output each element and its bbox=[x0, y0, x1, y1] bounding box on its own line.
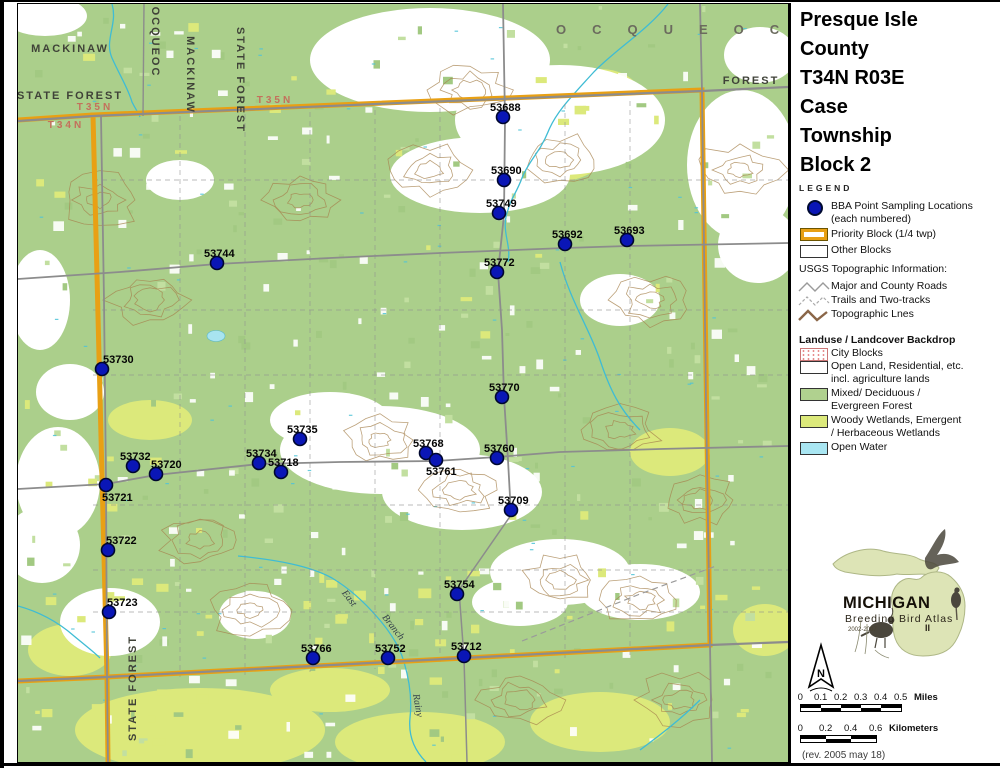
forest-swatch-icon bbox=[797, 387, 831, 401]
border-left bbox=[0, 0, 4, 768]
scalebar-km: 00.20.40.6Kilometers bbox=[800, 723, 990, 753]
border-bottom bbox=[0, 763, 1000, 766]
map-place-label: OCQUEOC bbox=[149, 7, 161, 78]
bba-point bbox=[103, 606, 116, 619]
map-place-label: T35N bbox=[77, 102, 113, 113]
bba-point-icon bbox=[797, 200, 831, 214]
landuse-item: Mixed/ Deciduous /Evergreen Forest bbox=[797, 387, 920, 413]
topo-lines-label: Topographic Lnes bbox=[831, 308, 914, 321]
legend-item-roads: Major and County Roads bbox=[797, 280, 947, 294]
scale-unit: Miles bbox=[914, 692, 938, 703]
bba-point bbox=[491, 266, 504, 279]
scale-tick: 0.4 bbox=[874, 692, 887, 703]
legend-heading: LEGEND bbox=[799, 183, 852, 193]
legend-item-other: Other Blocks bbox=[797, 244, 891, 258]
bba-point bbox=[559, 238, 572, 251]
scale-tick: 0.1 bbox=[814, 692, 827, 703]
bba-point bbox=[505, 504, 518, 517]
scale-tick: 0 bbox=[798, 723, 803, 734]
trails-label: Trails and Two-tracks bbox=[831, 294, 930, 307]
landuse-item: City Blocks bbox=[797, 347, 883, 361]
other-blocks-label: Other Blocks bbox=[831, 244, 891, 257]
bba-point-label: 53721 bbox=[102, 492, 133, 504]
bba-label: BBA Point Sampling Locations (each numbe… bbox=[831, 200, 973, 226]
bba-point bbox=[497, 111, 510, 124]
bba-point bbox=[458, 650, 471, 663]
wetland-swatch-icon bbox=[797, 414, 831, 428]
white-swatch-icon bbox=[797, 360, 831, 374]
legend-item-priority: Priority Block (1/4 twp) bbox=[797, 228, 936, 241]
bba-point bbox=[100, 479, 113, 492]
scale-tick: 0.4 bbox=[844, 723, 857, 734]
title-line: County bbox=[800, 35, 918, 64]
map-document: MACKINAWSTATE FORESTT35NT34NT35NOCQUEOCM… bbox=[0, 0, 1000, 768]
title-line: Presque Isle bbox=[800, 6, 918, 35]
title-line: T34N R03E bbox=[800, 64, 918, 93]
logo-subtitle: Breeding Bird Atlas bbox=[845, 613, 953, 625]
map-place-label: MACKINAW bbox=[31, 43, 109, 55]
scale-tick: 0.5 bbox=[894, 692, 907, 703]
bba-point-label: 53761 bbox=[426, 466, 457, 478]
revision-note: (rev. 2005 may 18) bbox=[802, 750, 885, 761]
water-swatch-icon bbox=[797, 441, 831, 455]
map-title: Presque IsleCountyT34N R03ECaseTownshipB… bbox=[800, 6, 918, 180]
landuse-item: Open Land, Residential, etc.incl. agricu… bbox=[797, 360, 964, 386]
scale-tick: 0.6 bbox=[869, 723, 882, 734]
scale-unit: Kilometers bbox=[889, 723, 938, 734]
landuse-item: Woody Wetlands, Emergent/ Herbaceous Wet… bbox=[797, 414, 961, 440]
logo-name: MICHIGAN bbox=[843, 594, 930, 613]
bba-point bbox=[96, 363, 109, 376]
topo-lines-icon bbox=[797, 308, 831, 322]
bba-point bbox=[493, 207, 506, 220]
landuse-item: Open Water bbox=[797, 441, 887, 455]
legend-item-bba: BBA Point Sampling Locations (each numbe… bbox=[797, 200, 973, 226]
logo-years: 2002-2007 bbox=[848, 627, 877, 633]
major-roads-label: Major and County Roads bbox=[831, 280, 947, 293]
bba-point bbox=[621, 234, 634, 247]
bba-point bbox=[211, 257, 224, 270]
priority-label: Priority Block (1/4 twp) bbox=[831, 228, 936, 241]
major-roads-icon bbox=[797, 280, 831, 294]
logo-numeral: II bbox=[925, 623, 930, 633]
landuse-label: Open Water bbox=[831, 441, 887, 454]
topo-map-svg: MACKINAWSTATE FORESTT35NT34NT35NOCQUEOCM… bbox=[18, 4, 788, 762]
sidebar: Presque IsleCountyT34N R03ECaseTownshipB… bbox=[793, 2, 1000, 763]
map-place-label: T34N bbox=[48, 120, 84, 131]
scale-tick: 0.2 bbox=[819, 723, 832, 734]
map-place-label: T35N bbox=[257, 95, 293, 106]
bba-point bbox=[451, 588, 464, 601]
map-place-label: STATE FOREST bbox=[127, 635, 139, 741]
legend-item-topo: Topographic Lnes bbox=[797, 308, 914, 322]
bba-point-label: 53730 bbox=[103, 354, 134, 366]
title-line: Township bbox=[800, 122, 918, 151]
legend-item-trails: Trails and Two-tracks bbox=[797, 294, 930, 308]
trails-icon bbox=[797, 294, 831, 308]
map-place-label: STATE FOREST bbox=[18, 90, 123, 102]
bba-point bbox=[307, 652, 320, 665]
scale-tick: 0 bbox=[798, 692, 803, 703]
bba-point bbox=[496, 391, 509, 404]
title-line: Block 2 bbox=[800, 151, 918, 180]
other-blocks-icon bbox=[797, 244, 831, 258]
scalebar-miles: 00.10.20.30.40.5Miles bbox=[800, 692, 990, 722]
bba-point bbox=[275, 466, 288, 479]
bba-point bbox=[253, 457, 266, 470]
bba-point bbox=[498, 174, 511, 187]
landuse-heading: Landuse / Landcover Backdrop bbox=[799, 334, 955, 346]
bba-point bbox=[294, 433, 307, 446]
bba-point bbox=[382, 652, 395, 665]
svg-text:N: N bbox=[817, 668, 825, 680]
priority-block-icon bbox=[797, 228, 831, 240]
scale-tick: 0.2 bbox=[834, 692, 847, 703]
usgs-heading: USGS Topographic Information: bbox=[799, 263, 947, 275]
bba-point bbox=[150, 468, 163, 481]
map-place-label: FOREST bbox=[723, 75, 780, 87]
landuse-label: Woody Wetlands, Emergent/ Herbaceous Wet… bbox=[831, 414, 961, 440]
landuse-label: City Blocks bbox=[831, 347, 883, 360]
map-place-label: STATE FOREST bbox=[234, 27, 246, 133]
north-arrow: N bbox=[805, 642, 837, 699]
bba-point bbox=[127, 460, 140, 473]
bba-point bbox=[430, 454, 443, 467]
bba-point bbox=[102, 544, 115, 557]
map-place-label: OCQUEOC bbox=[556, 22, 788, 37]
bba-point bbox=[491, 452, 504, 465]
map-canvas: MACKINAWSTATE FORESTT35NT34NT35NOCQUEOCM… bbox=[17, 3, 791, 763]
title-line: Case bbox=[800, 93, 918, 122]
landuse-label: Mixed/ Deciduous /Evergreen Forest bbox=[831, 387, 920, 413]
city-swatch-icon bbox=[797, 347, 831, 361]
map-place-label: MACKINAW bbox=[184, 36, 196, 114]
landuse-label: Open Land, Residential, etc.incl. agricu… bbox=[831, 360, 964, 386]
scale-tick: 0.3 bbox=[854, 692, 867, 703]
pond bbox=[207, 331, 225, 342]
